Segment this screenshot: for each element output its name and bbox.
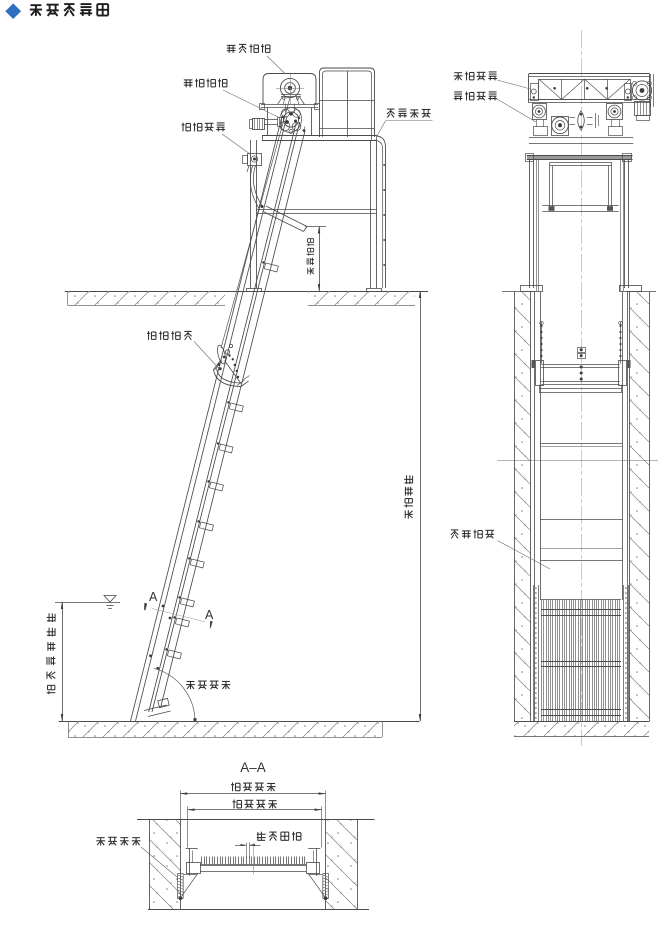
svg-text:A: A (149, 590, 158, 604)
svg-text:A–A: A–A (240, 760, 266, 775)
svg-text:A: A (205, 608, 214, 622)
